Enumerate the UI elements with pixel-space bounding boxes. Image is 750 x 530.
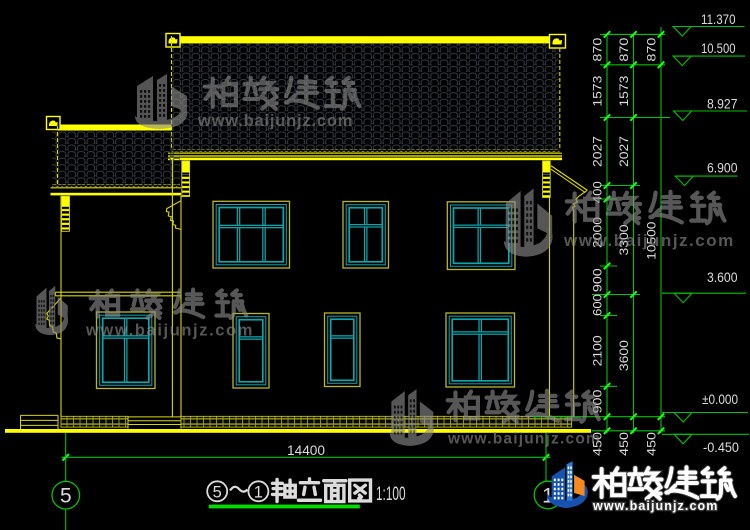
svg-text:870: 870	[591, 37, 605, 61]
svg-text:870: 870	[617, 37, 631, 61]
svg-text:8.927: 8.927	[707, 95, 738, 111]
svg-text:450: 450	[645, 432, 659, 456]
svg-text:5: 5	[213, 483, 222, 501]
svg-text:1573: 1573	[617, 75, 631, 106]
svg-text:±0.000: ±0.000	[702, 391, 738, 407]
svg-text:2100: 2100	[591, 335, 605, 366]
svg-text:870: 870	[645, 37, 659, 61]
svg-text:www.baijunjz.com: www.baijunjz.com	[592, 499, 718, 513]
svg-text:450: 450	[617, 432, 631, 456]
svg-text:900: 900	[591, 268, 605, 292]
svg-text:11.370: 11.370	[701, 11, 736, 27]
svg-text:14400: 14400	[287, 442, 325, 458]
svg-text:3.600: 3.600	[707, 269, 738, 285]
svg-text:2027: 2027	[617, 136, 631, 167]
svg-text:3600: 3600	[617, 340, 631, 371]
svg-text:1573: 1573	[591, 75, 605, 106]
svg-text:5: 5	[60, 485, 72, 508]
svg-text:-0.450: -0.450	[703, 439, 739, 455]
svg-text:600: 600	[591, 294, 605, 316]
svg-text:www.baijunjz.com: www.baijunjz.com	[197, 112, 353, 130]
svg-text:6.900: 6.900	[707, 159, 738, 175]
svg-text:www.baijunjz.com: www.baijunjz.com	[447, 431, 601, 448]
svg-text:1:100: 1:100	[376, 484, 406, 505]
svg-text:www.baijunjz.com: www.baijunjz.com	[563, 231, 735, 250]
svg-text:www.baijunjz.com: www.baijunjz.com	[85, 322, 254, 340]
svg-text:10.500: 10.500	[701, 40, 736, 56]
svg-text:2027: 2027	[591, 136, 605, 167]
svg-text:1: 1	[254, 483, 263, 501]
